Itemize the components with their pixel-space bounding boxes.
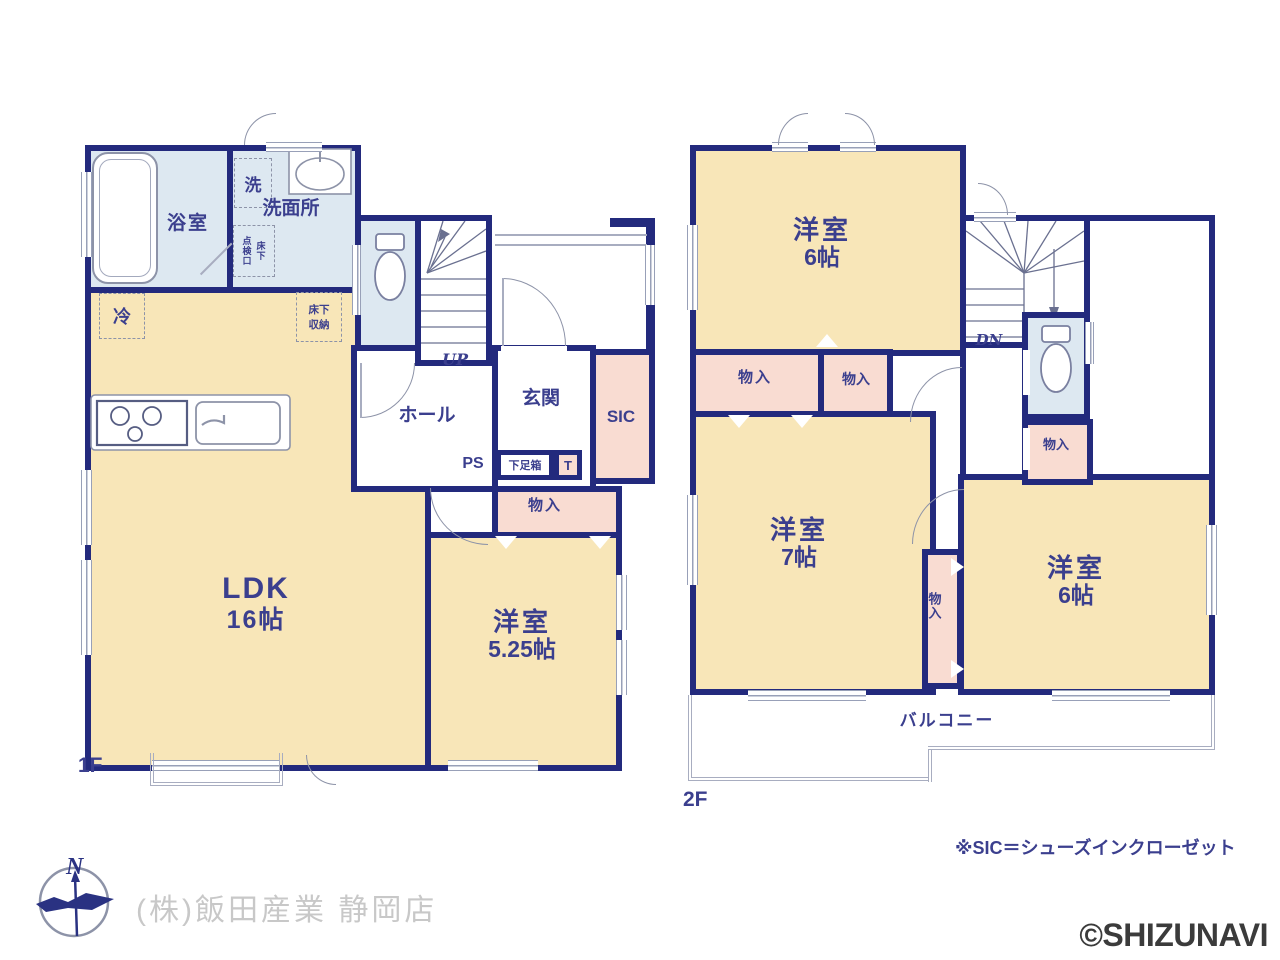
fridge-space: 冷 bbox=[99, 293, 145, 339]
sic-label: SIC bbox=[607, 407, 635, 426]
company-name: (株)飯田産業 静岡店 bbox=[136, 894, 437, 928]
toilet-1f-fixture bbox=[368, 232, 412, 308]
closet-opening-marker bbox=[951, 660, 964, 678]
closet-vertical-label: 物入 bbox=[926, 592, 941, 620]
toilet-t-label: T bbox=[564, 458, 572, 473]
washroom-exterior-door-arc bbox=[244, 113, 276, 145]
underfloor-inspection: 点検口 床下 bbox=[233, 225, 275, 277]
closet-side-label: 物入 bbox=[1043, 438, 1069, 453]
stairs-top-door-arc bbox=[978, 183, 1008, 215]
floorplan-canvas: 洗 点検口 床下 冷 床下 収納 下足箱 T 浴室 洗面所 UP ホール 玄関 bbox=[0, 0, 1280, 960]
closet-opening-marker bbox=[495, 536, 517, 549]
western-7-door-arc bbox=[910, 367, 962, 422]
washbasin bbox=[288, 148, 352, 196]
window bbox=[81, 560, 92, 655]
terrace-outline bbox=[150, 753, 283, 786]
western-7-label: 洋室 7帖 bbox=[770, 516, 828, 571]
porch-canopy-line bbox=[495, 234, 647, 236]
exterior-window-arc bbox=[845, 113, 875, 145]
laundry-label: 洗 bbox=[245, 171, 262, 196]
closet-opening-marker bbox=[951, 558, 964, 576]
inspection-right-label: 床下 bbox=[255, 241, 268, 261]
balcony-label: バルコニー bbox=[900, 711, 995, 730]
window bbox=[645, 245, 655, 305]
opening-marker bbox=[1005, 423, 1018, 441]
toilet-2f-door-opening bbox=[1023, 350, 1030, 395]
stairs-up-label: UP bbox=[442, 351, 468, 369]
toilet-t-box: T bbox=[554, 450, 582, 480]
sic-note: ※SIC＝シューズインクローゼット bbox=[955, 838, 1236, 858]
window bbox=[81, 470, 92, 545]
closet-opening-marker bbox=[816, 334, 838, 347]
entrance-label: 玄関 bbox=[522, 388, 560, 409]
underfloor-storage-line1: 床下 bbox=[309, 302, 330, 317]
underfloor-storage-line2: 収納 bbox=[309, 317, 330, 332]
western-525-label: 洋室 5.25帖 bbox=[488, 608, 556, 663]
closet-wide-label: 物入 bbox=[738, 370, 772, 387]
balcony-outline-step bbox=[928, 750, 932, 782]
window bbox=[616, 640, 627, 695]
ps-label: PS bbox=[462, 455, 483, 473]
closet-side-opening bbox=[1023, 428, 1030, 470]
washroom-label: 洗面所 bbox=[262, 198, 319, 219]
closet-small-label: 物入 bbox=[842, 372, 870, 388]
entrance-door-opening bbox=[501, 346, 567, 353]
window bbox=[616, 575, 627, 630]
hall-label: ホール bbox=[398, 405, 455, 426]
window bbox=[1052, 690, 1170, 701]
window bbox=[687, 495, 698, 585]
western-6-top-label: 洋室 6帖 bbox=[793, 216, 851, 271]
shoe-box-label: 下足箱 bbox=[509, 457, 542, 473]
toilet-2f-fixture bbox=[1034, 324, 1078, 400]
shoe-box: 下足箱 bbox=[496, 450, 554, 480]
window bbox=[1206, 525, 1217, 615]
underfloor-storage: 床下 収納 bbox=[296, 292, 342, 342]
western-6-right-label: 洋室 6帖 bbox=[1047, 554, 1105, 609]
porch-canopy-line2 bbox=[495, 244, 647, 246]
window bbox=[687, 225, 698, 310]
window bbox=[352, 245, 361, 315]
window bbox=[448, 760, 538, 771]
window bbox=[81, 172, 92, 257]
bathroom-label: 浴室 bbox=[167, 213, 209, 234]
closet-opening-marker bbox=[728, 415, 750, 428]
stairs-dn-label: DN bbox=[976, 332, 1003, 349]
window bbox=[748, 690, 866, 701]
balcony-outline-left bbox=[688, 695, 928, 781]
floor2-label: 2F bbox=[683, 788, 708, 812]
closet-opening-marker bbox=[589, 536, 611, 549]
compass-icon: N bbox=[28, 848, 123, 940]
stairs-1f-steps bbox=[421, 221, 486, 360]
watermark: ©SHIZUNAVI bbox=[1079, 918, 1268, 954]
inspection-left-label: 点検口 bbox=[241, 236, 254, 266]
opening-marker bbox=[562, 423, 575, 441]
window bbox=[1085, 322, 1094, 364]
exterior-window-arc bbox=[778, 113, 808, 145]
fridge-label: 冷 bbox=[113, 303, 131, 329]
terrace-door-arc bbox=[306, 755, 336, 785]
hall-door-leaf bbox=[360, 363, 362, 418]
ldk-label: LDK 16帖 bbox=[222, 572, 290, 634]
entrance-door-leaf bbox=[502, 278, 504, 346]
closet-opening-marker bbox=[791, 415, 813, 428]
floor1-label: 1F bbox=[78, 754, 103, 778]
kitchen-counter bbox=[90, 393, 292, 453]
closet-1f-label: 物入 bbox=[528, 498, 562, 515]
entrance-door-arc bbox=[502, 278, 566, 346]
stairs-1f bbox=[415, 215, 492, 366]
bathtub bbox=[92, 152, 158, 284]
